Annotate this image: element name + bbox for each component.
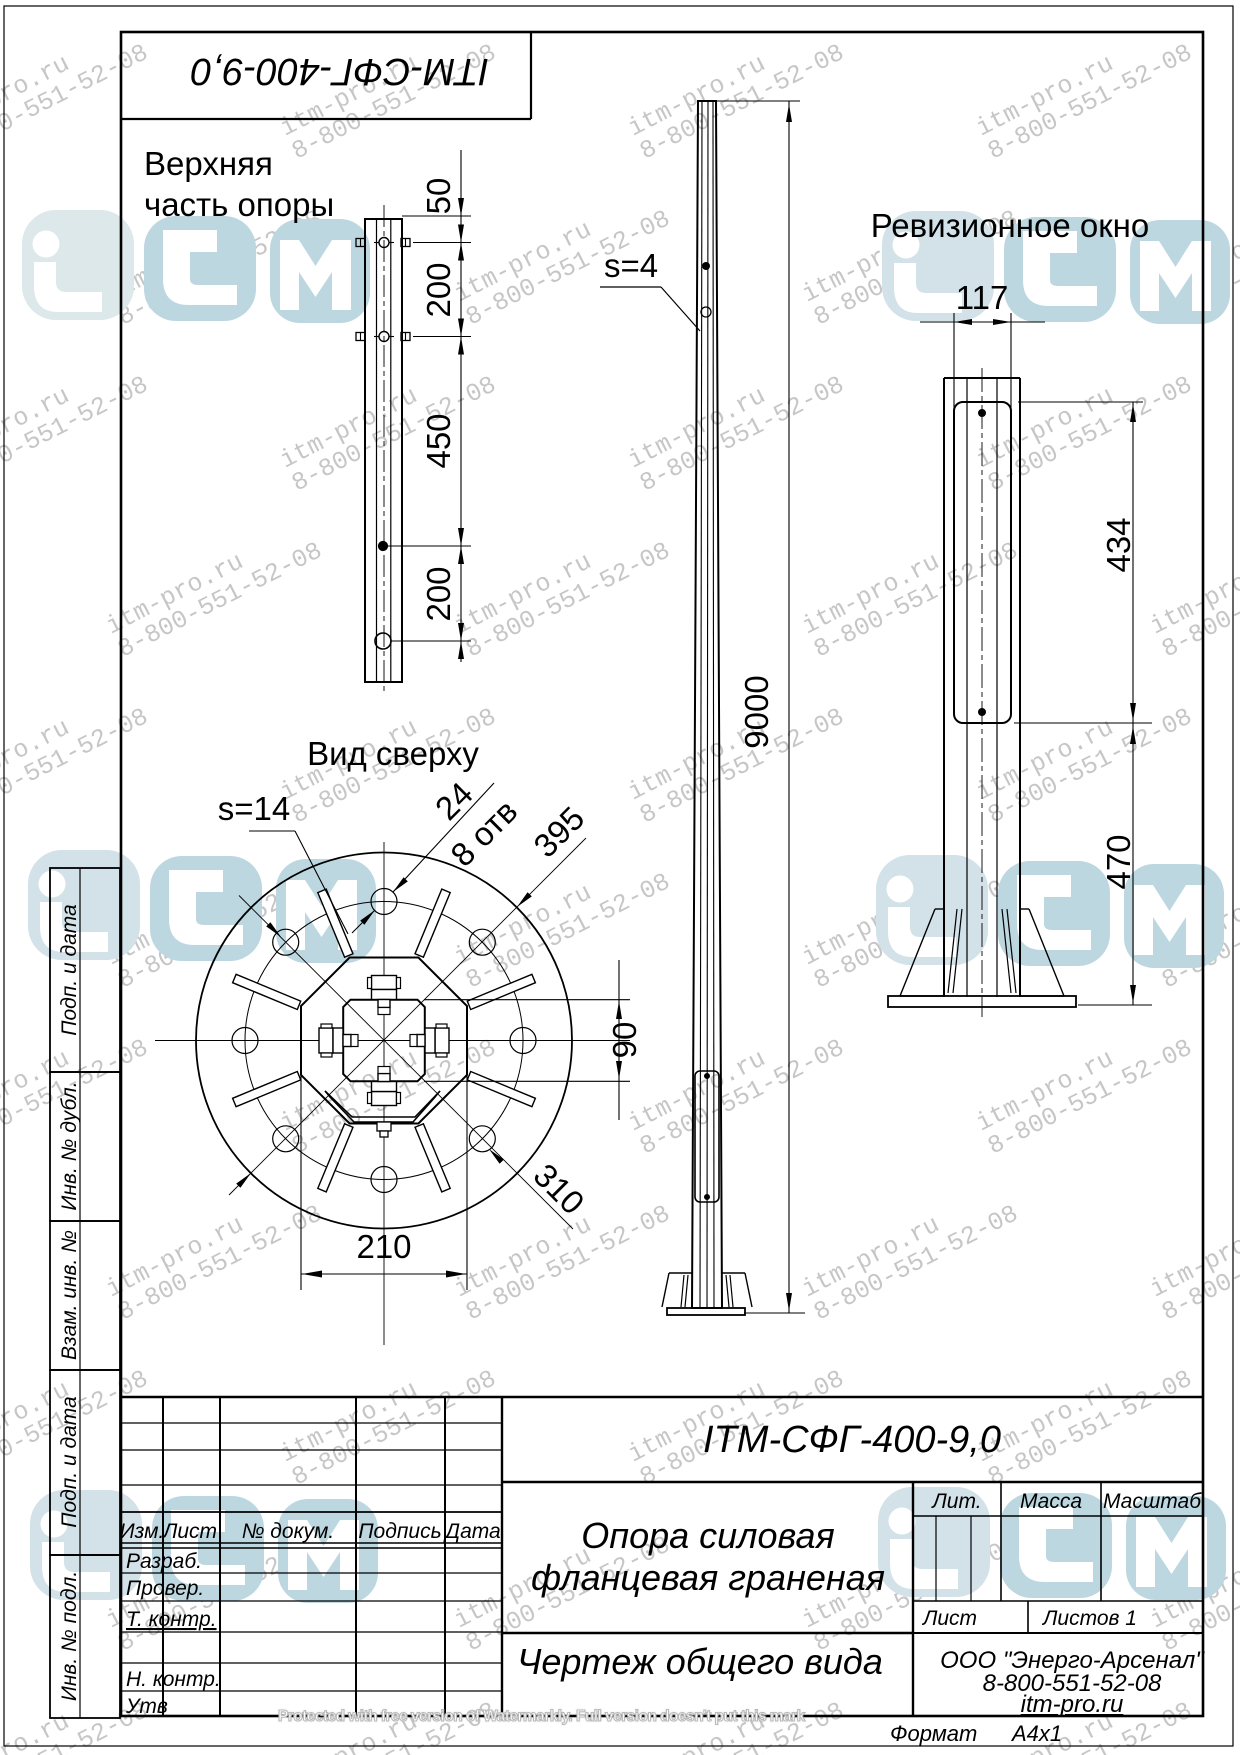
svg-text:117: 117 <box>956 279 1009 316</box>
svg-text:Подп. и дата: Подп. и дата <box>58 904 81 1035</box>
svg-text:Масса: Масса <box>1020 1490 1082 1513</box>
svg-text:9000: 9000 <box>738 675 775 748</box>
svg-text:Ревизионное окно: Ревизионное окно <box>871 207 1150 244</box>
svg-text:Подпись: Подпись <box>358 1520 441 1543</box>
svg-text:Подп. и дата: Подп. и дата <box>58 1396 81 1527</box>
svg-text:Разраб.: Разраб. <box>126 1550 202 1573</box>
svg-text:Инв. № подл.: Инв. № подл. <box>58 1571 81 1701</box>
svg-text:434: 434 <box>1100 517 1137 572</box>
svg-text:Лист: Лист <box>921 1607 977 1630</box>
svg-text:s=14: s=14 <box>218 790 290 827</box>
svg-text:Инв. № дубл.: Инв. № дубл. <box>58 1081 81 1210</box>
svg-text:фланцевая граненая: фланцевая граненая <box>531 1557 885 1598</box>
svg-text:8-800-551-52-08: 8-800-551-52-08 <box>113 0 327 1</box>
svg-text:90: 90 <box>606 1022 643 1059</box>
svg-text:Лит.: Лит. <box>930 1490 981 1513</box>
svg-text:Утв: Утв <box>125 1695 168 1718</box>
svg-text:ITM-СФГ-400-9,0: ITM-СФГ-400-9,0 <box>703 1419 1001 1461</box>
svg-text:№ докум.: № докум. <box>242 1520 335 1543</box>
svg-text:8-800-551-52-08: 8-800-551-52-08 <box>461 0 675 1</box>
svg-text:395: 395 <box>526 799 591 864</box>
svg-text:Лист: Лист <box>161 1520 217 1543</box>
svg-text:ITM-СФГ-400-9,0: ITM-СФГ-400-9,0 <box>191 50 489 92</box>
svg-text:450: 450 <box>420 413 457 468</box>
svg-text:Изм.: Изм. <box>120 1520 165 1543</box>
svg-text:Масштаб: Масштаб <box>1103 1490 1202 1513</box>
svg-text:Верхняя: Верхняя <box>144 145 273 182</box>
svg-text:Дата: Дата <box>443 1520 500 1543</box>
svg-text:Формат: Формат <box>890 1721 977 1746</box>
svg-text:8-800-551-52-08: 8-800-551-52-08 <box>0 38 153 166</box>
svg-text:50: 50 <box>420 178 457 215</box>
svg-text:200: 200 <box>420 262 457 317</box>
svg-text:itm-pro.ru: itm-pro.ru <box>1021 1691 1124 1718</box>
svg-text:8-800-551-52-08: 8-800-551-52-08 <box>0 702 153 830</box>
svg-text:Листов 1: Листов 1 <box>1041 1607 1137 1630</box>
svg-text:8-800-551-52-08: 8-800-551-52-08 <box>0 370 153 498</box>
svg-text:470: 470 <box>1100 834 1137 889</box>
svg-text:Н. контр.: Н. контр. <box>126 1668 221 1691</box>
svg-text:Опора силовая: Опора силовая <box>581 1515 834 1556</box>
svg-text:s=4: s=4 <box>604 247 658 284</box>
svg-text:Чертеж общего вида: Чертеж общего вида <box>517 1641 883 1682</box>
svg-text:Т. контр.: Т. контр. <box>126 1608 217 1631</box>
svg-text:200: 200 <box>420 566 457 621</box>
svg-text:Провер.: Провер. <box>126 1577 204 1600</box>
svg-text:8-800-551-52-08: 8-800-551-52-08 <box>809 0 1023 1</box>
svg-text:Вид сверху: Вид сверху <box>307 735 479 772</box>
svg-text:А4х1: А4х1 <box>1010 1721 1062 1746</box>
svg-text:8-800-551-52-08: 8-800-551-52-08 <box>1157 0 1240 1</box>
svg-text:Взам. инв. №: Взам. инв. № <box>58 1230 81 1360</box>
svg-text:часть опоры: часть опоры <box>144 186 334 223</box>
svg-text:210: 210 <box>356 1228 411 1265</box>
